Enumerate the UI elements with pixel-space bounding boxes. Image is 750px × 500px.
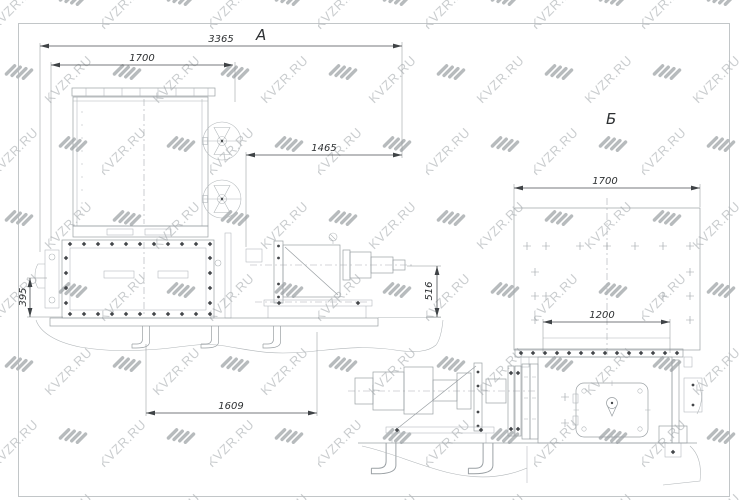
fan-top [203,122,242,160]
view-a-label: А [255,26,266,44]
dim-value: 1609 [218,401,243,412]
watermark-layer [0,0,750,500]
dim-value: 516 [424,281,435,300]
dim-value: 1465 [311,143,336,154]
dim-value: 395 [18,287,29,306]
dim-value: 1700 [592,176,617,187]
dim-value: 1700 [129,53,154,64]
dim-value: 3365 [208,34,233,45]
dim-value: 1200 [589,310,614,321]
fan-bottom [203,180,242,218]
technical-drawing: KVZR.RU KVZR.RU А [0,0,750,500]
view-b-label: Б [606,110,616,128]
